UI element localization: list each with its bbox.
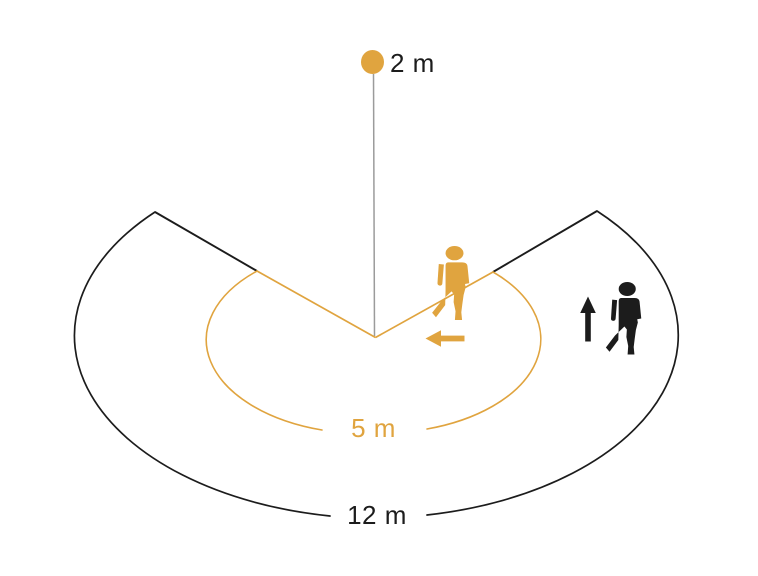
sector-edge-right-outer xyxy=(493,211,597,272)
outer-radius-label: 12 m xyxy=(347,500,407,530)
inner-range-arc-left xyxy=(206,271,322,430)
sector-edge-left-outer xyxy=(155,212,257,271)
walking-person-icon xyxy=(606,282,641,355)
mounting-height-label: 2 m xyxy=(390,48,435,78)
sector-edge-left-inner xyxy=(257,271,376,338)
arrow-left-icon xyxy=(426,330,465,347)
coverage-diagram-svg: 2 m 5 m 12 m xyxy=(0,0,758,576)
inner-radius-label: 5 m xyxy=(351,413,396,443)
outer-range-arc-left xyxy=(74,212,330,516)
outer-range-arc-right xyxy=(427,211,678,515)
sensor-coverage-diagram: 2 m 5 m 12 m xyxy=(0,0,758,576)
walking-person-icon xyxy=(432,246,469,320)
arrow-up-icon xyxy=(580,297,596,342)
sector-edge-right-inner xyxy=(376,272,494,338)
mounting-pole-line xyxy=(374,74,375,336)
sensor-dot xyxy=(361,50,384,74)
inner-range-arc-right xyxy=(427,272,541,429)
